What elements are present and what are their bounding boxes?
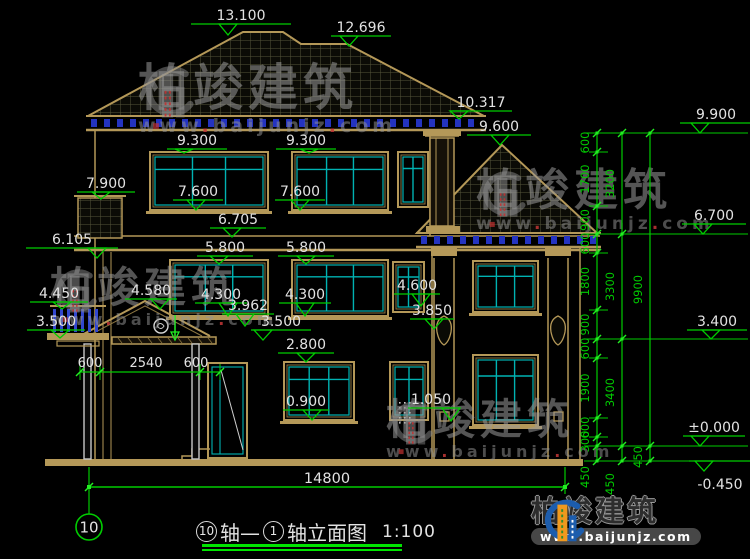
svg-text:-0.450: -0.450 [697,477,742,493]
title-text-suffix: 轴立面图 [287,517,367,546]
svg-text:14800: 14800 [304,471,350,487]
elevation-marker-12696: 12.696 [331,20,391,46]
title-underline-bottom [202,549,402,551]
elevation-markers: 13.10012.69610.3179.6009.9009.3009.3007.… [26,8,750,493]
svg-text:3.850: 3.850 [412,303,452,319]
annotation-layer: 13.10012.69610.3179.6009.9009.3009.3007.… [0,0,750,559]
elevation-marker-5800: 5.800 [197,240,253,264]
svg-text:9900: 9900 [631,275,645,304]
svg-text:4.300: 4.300 [285,287,325,303]
elevation-marker-13100: 13.100 [191,8,291,35]
axis-bubble: 10 [76,514,102,540]
elevation-marker-7900: 7.900 [77,176,135,199]
svg-text:450: 450 [603,473,617,495]
svg-text:±0.000: ±0.000 [688,420,740,436]
elevation-marker-10317: 10.317 [450,95,512,119]
axis-bubble-1-glyph: 1 [263,521,284,542]
title-text-mid: 轴— [220,517,260,546]
site-logo: 柏竣建筑 www.baijunjz.com [531,497,701,545]
svg-text:3300: 3300 [603,272,617,301]
svg-text:0.900: 0.900 [286,394,326,410]
svg-text:900: 900 [578,209,592,231]
svg-text:5.800: 5.800 [286,240,326,256]
svg-text:1700: 1700 [578,164,592,193]
svg-text:13.100: 13.100 [217,8,266,24]
svg-text:10.317: 10.317 [457,95,506,111]
svg-text:3.500: 3.500 [261,314,301,330]
svg-text:7.900: 7.900 [86,176,126,192]
axis-bubble-10-glyph: 10 [196,521,217,542]
svg-text:9.300: 9.300 [286,133,326,149]
elevation-marker-4450: 4.450 [30,286,88,309]
svg-text:450: 450 [578,466,592,488]
svg-text:6.700: 6.700 [694,208,734,224]
elevation-marker-7600: 7.600 [173,184,223,210]
svg-text:7.600: 7.600 [280,184,320,200]
elevation-marker-3850: 3.850 [410,303,454,329]
elevation-marker-6105: 6.105 [26,232,118,258]
logo-building-icon [531,497,593,555]
svg-text:3400: 3400 [603,378,617,407]
svg-text:7.600: 7.600 [178,184,218,200]
svg-text:900: 900 [578,314,592,336]
svg-text:3.400: 3.400 [697,314,737,330]
svg-text:5.800: 5.800 [205,240,245,256]
drawing-title: 10轴—1轴立面图1:100 [196,517,436,546]
svg-text:450: 450 [631,446,645,468]
elevation-marker-4300: 4.300 [279,287,331,316]
svg-text:600: 600 [184,356,209,371]
svg-text:9.900: 9.900 [696,107,736,123]
svg-text:12.696: 12.696 [337,20,386,36]
svg-text:1.050: 1.050 [411,392,451,408]
svg-text:4.600: 4.600 [397,278,437,294]
svg-text:300: 300 [578,431,592,453]
elevation-marker-7600: 7.600 [275,184,325,210]
elevation-marker-9300: 9.300 [167,133,227,153]
elevation-marker-0450: -0.450 [689,461,750,493]
overall-dimension: 14800 [85,467,569,514]
svg-text:9.600: 9.600 [479,119,519,135]
svg-text:600: 600 [578,233,592,255]
svg-text:6.705: 6.705 [218,212,258,228]
svg-text:6.105: 6.105 [52,232,92,248]
elevation-marker-0900: 0.900 [283,394,329,420]
svg-text:3200: 3200 [603,169,617,198]
elevation-marker-3500: 3.500 [27,314,85,338]
elevation-marker-9900: 9.900 [680,107,750,133]
svg-text:2.800: 2.800 [286,337,326,353]
elevation-marker-2800: 2.800 [278,337,334,362]
right-dimension-chain: 6001700900600180090060019006003004503200… [578,129,748,495]
svg-text:1800: 1800 [578,267,592,296]
svg-text:600: 600 [578,132,592,154]
svg-text:9.300: 9.300 [177,133,217,149]
drawing-scale: 1:100 [382,522,436,542]
svg-text:4.450: 4.450 [39,286,79,302]
svg-text:3.500: 3.500 [36,314,76,330]
cad-elevation-drawing: 柏竣建筑www.baijunjz.com柏竣建筑www.baijunjz.com… [0,0,750,559]
svg-text:2540: 2540 [129,356,162,371]
elevation-marker-5800: 5.800 [278,240,334,264]
elevation-marker-1050: 1.050 [408,392,460,421]
elevation-marker-6705: 6.705 [210,212,266,237]
elevation-marker-3400: 3.400 [687,314,747,339]
elevation-marker-9600: 9.600 [467,119,531,145]
title-underline-top [202,544,402,547]
elevation-marker-4580: 4.580 [125,283,177,309]
svg-text:10: 10 [79,519,98,537]
svg-text:600: 600 [78,356,103,371]
svg-text:600: 600 [578,338,592,360]
elevation-marker-4600: 4.600 [394,278,440,306]
elevation-marker-9300: 9.300 [276,133,336,153]
svg-text:1900: 1900 [578,373,592,402]
svg-text:4.580: 4.580 [131,283,171,299]
elevation-marker-0000: ±0.000 [683,420,745,446]
porch-dimension: 6002540600 [76,356,224,380]
elevation-marker-6700: 6.700 [682,208,746,234]
svg-text:3.962: 3.962 [228,298,268,314]
